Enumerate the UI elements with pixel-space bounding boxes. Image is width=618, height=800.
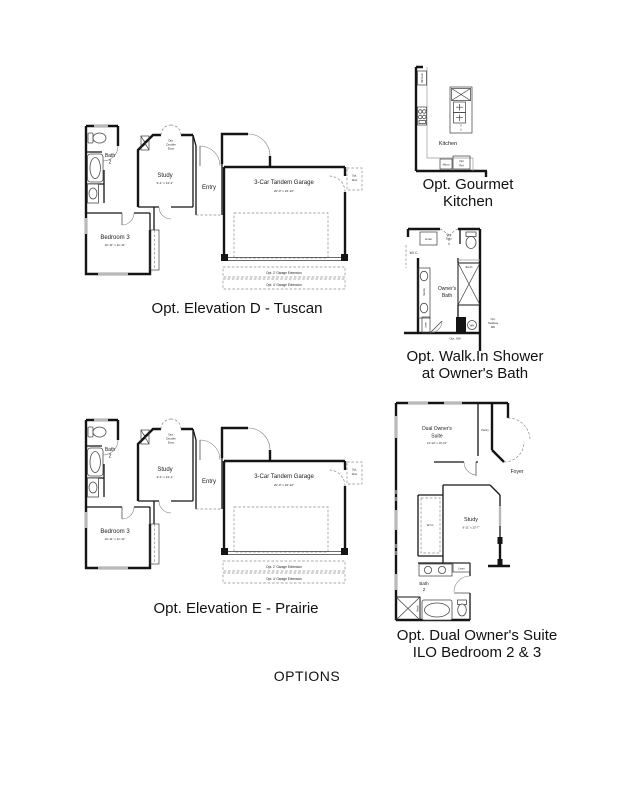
double-oven-icon: Dbl Oven [418, 71, 427, 85]
sink-icon [88, 478, 99, 497]
toilet-icon [88, 133, 106, 143]
bath2-label-2: 2 [423, 587, 426, 592]
bench-label: Bench [417, 604, 420, 611]
opt-double-door: Opt. Double Door [161, 125, 181, 151]
dual-suite-drawing: W.I.C. Linen Bench [388, 394, 568, 626]
bathtub-icon [422, 600, 452, 620]
bathtub-icon [88, 448, 104, 476]
plan-gourmet-kitchen: Dbl Oven Kitchen Micro [408, 62, 498, 180]
linen-label: Linen [144, 139, 147, 146]
bath-door-swing [430, 321, 442, 333]
wh-label: WH [470, 323, 475, 327]
toilet-icon [458, 600, 467, 616]
garage-dim: 20'-0" x 19'-10" [274, 483, 294, 487]
walkin-shower-drawing: Linen Opt. Door W.I.C. Vanity Owner's Ba… [402, 224, 507, 356]
microwave-icon: Micro [440, 159, 452, 169]
wic-label: W.I.C. [410, 251, 419, 255]
suite-label-2: Suite [431, 434, 443, 440]
linen-closet-bottom: Linen [422, 317, 430, 333]
exterior-walls [86, 126, 345, 274]
bedroom3-label: Bedroom 3 [100, 529, 130, 535]
opt-door: Opt. Door [440, 229, 458, 245]
bedroom-closet [150, 230, 159, 270]
study-label: Study [157, 173, 172, 179]
interior-walls [86, 135, 222, 230]
garage-dim: 20'-0" x 19'-10" [274, 189, 294, 193]
study-label: Study [464, 517, 478, 523]
wall-fill [498, 537, 503, 544]
wic-closet: W.I.C. [421, 498, 440, 553]
kitchen-island [450, 87, 472, 133]
study-label: Study [157, 467, 172, 473]
opt-door-label-2: Door [352, 178, 358, 182]
bathtub-icon [88, 154, 104, 182]
garage-label: 3-Car Tandem Garage [254, 180, 314, 186]
linen-label: Linen [144, 433, 147, 440]
opt-sw-label: Opt. SW [449, 337, 461, 341]
caption-elevation-d: Opt. Elevation D - Tuscan [137, 300, 337, 317]
bath2-label-2: 2 [109, 160, 112, 166]
bedroom3-dim: 10'-11" x 11'-11" [104, 537, 125, 541]
elevation-floorplan-drawing: Linen Opt. Double Door Opt. Door Opt. 2'… [64, 414, 364, 599]
garage-ext4-label: Opt. 4' Garage Extension [266, 577, 302, 581]
opt-door-label-1: Opt. [352, 174, 357, 178]
garage-ext2-label: Opt. 2' Garage Extension [266, 565, 302, 569]
caption-dual-suite-line1: Opt. Dual Owner's Suite [377, 627, 577, 644]
options-sheet: Linen Opt. Double Door Opt. Door Opt. 2'… [0, 0, 618, 800]
garage-ext2-label: Opt. 2' Garage Extension [266, 271, 302, 275]
suite-label-1: Dual Owner's [422, 426, 452, 432]
linen-top-label: Linen [425, 237, 433, 241]
tankless-label-3: WH [491, 325, 495, 329]
opt-double-door: Opt. Double Door [161, 419, 181, 445]
shower-icon: Bench [396, 597, 420, 620]
bedroom3-dim: 10'-11" x 11'-11" [104, 243, 125, 247]
owners-bath-label-2: Bath [442, 293, 453, 299]
wall-fill [498, 559, 503, 566]
opt-double-door-label-3: Door [168, 441, 175, 445]
linen-bottom-label: Linen [425, 321, 428, 328]
pantry-label: Pantry [481, 428, 489, 432]
plan-elevation-e-prairie: Linen Opt. Double Door Opt. Door Opt. 2'… [64, 414, 364, 599]
caption-gourmet-kitchen-line1: Opt. Gourmet [398, 176, 538, 193]
interior-walls [86, 429, 222, 524]
opt-ref-label-2: Ref [459, 163, 464, 167]
opt-door-label-1: Opt. [352, 468, 357, 472]
tankless-label-1: Opt. [491, 317, 496, 321]
toilet-icon [466, 232, 476, 249]
garage-details: Opt. Door Opt. 2' Garage Extension Opt. … [221, 168, 362, 289]
tankless-wh-note: Opt. Tankless WH [488, 317, 499, 329]
options-title: OPTIONS [247, 668, 367, 684]
entry-label: Entry [202, 185, 216, 191]
garage-ext4-label: Opt. 4' Garage Extension [266, 283, 302, 287]
caption-dual-suite-line2: ILO Bedroom 2 & 3 [377, 644, 577, 661]
bench-label: Bench [466, 266, 473, 269]
bath2-label-1: Bath [105, 447, 116, 453]
owners-bath-label-1: Owner's [438, 286, 457, 292]
bath2-fixtures: Linen Bench [396, 563, 470, 620]
linen-closet-top: Linen [420, 232, 437, 245]
tankless-label-2: Tankless [488, 321, 499, 325]
plan-walkin-shower: Linen Opt. Door W.I.C. Vanity Owner's Ba… [402, 224, 507, 356]
toilet-icon [88, 427, 106, 437]
gourmet-kitchen-drawing: Dbl Oven Kitchen Micro [408, 62, 498, 180]
linen-closet: Linen [141, 430, 149, 444]
dual-exterior-walls [396, 403, 510, 620]
study-dim: 9'-1" x 13'-1" [157, 475, 174, 479]
wall-fill [456, 317, 466, 333]
opt-door-label-2: Door [446, 237, 452, 241]
bath2-fixtures [88, 427, 107, 497]
entry-label: Entry [202, 479, 216, 485]
study-dim: 9'-1" x 13'-1" [157, 181, 174, 185]
linen-closet: Linen [141, 136, 149, 150]
suite-dim: 13'-10" x 10'-11" [427, 441, 447, 445]
plan-dual-owners-suite: W.I.C. Linen Bench [388, 394, 568, 626]
water-heater-icon: WH [468, 321, 477, 330]
walkin-shower-icon: Bench [458, 260, 480, 305]
wic-label: W.I.C. [427, 523, 435, 527]
exterior-walls [86, 420, 345, 568]
caption-walkin-shower-line2: at Owner's Bath [375, 365, 575, 382]
caption-walkin-shower-line1: Opt. Walk.In Shower [375, 348, 575, 365]
caption-gourmet-kitchen: Opt. Gourmet Kitchen [398, 176, 538, 210]
kitchen-room-label: Kitchen [439, 141, 457, 147]
garage-details: Opt. Door Opt. 2' Garage Extension Opt. … [221, 462, 362, 583]
opt-door-label-2: Door [352, 472, 358, 476]
bath2-label-1: Bath [105, 153, 116, 159]
caption-walkin-shower: Opt. Walk.In Shower at Owner's Bath [375, 348, 575, 382]
dbl-oven-label: Dbl Oven [421, 72, 424, 83]
garage-label: 3-Car Tandem Garage [254, 474, 314, 480]
opt-double-door-label-3: Door [168, 147, 175, 151]
caption-dual-suite: Opt. Dual Owner's Suite ILO Bedroom 2 & … [377, 627, 577, 661]
opt-ref-label-1: Opt [459, 159, 464, 163]
elevation-floorplan-drawing: Linen Opt. Double Door Opt. Door Opt. 2'… [64, 120, 364, 305]
caption-gourmet-kitchen-line2: Kitchen [398, 193, 538, 210]
bath2-label-1: Bath [419, 581, 429, 586]
vanity: Vanity [418, 268, 430, 318]
vanity-label: Vanity [422, 288, 426, 296]
plan-elevation-d-tuscan: Linen Opt. Double Door Opt. Door Opt. 2'… [64, 120, 364, 305]
cooktop-icon [418, 107, 427, 125]
double-vanity-icon [419, 564, 452, 576]
foyer-label: Foyer [511, 469, 524, 475]
bath2-fixtures [88, 133, 107, 203]
bath2-label-2: 2 [109, 454, 112, 460]
dual-interior-walls [418, 403, 500, 620]
linen-label: Linen [458, 566, 465, 570]
study-dim: 9'-11" x 13'-7" [463, 526, 480, 530]
caption-elevation-e: Opt. Elevation E - Prairie [136, 600, 336, 617]
micro-label: Micro [443, 162, 450, 166]
sink-icon [88, 184, 99, 203]
linen-closet: Linen [453, 563, 470, 572]
bedroom3-label: Bedroom 3 [100, 235, 130, 241]
bedroom-closet [150, 524, 159, 564]
